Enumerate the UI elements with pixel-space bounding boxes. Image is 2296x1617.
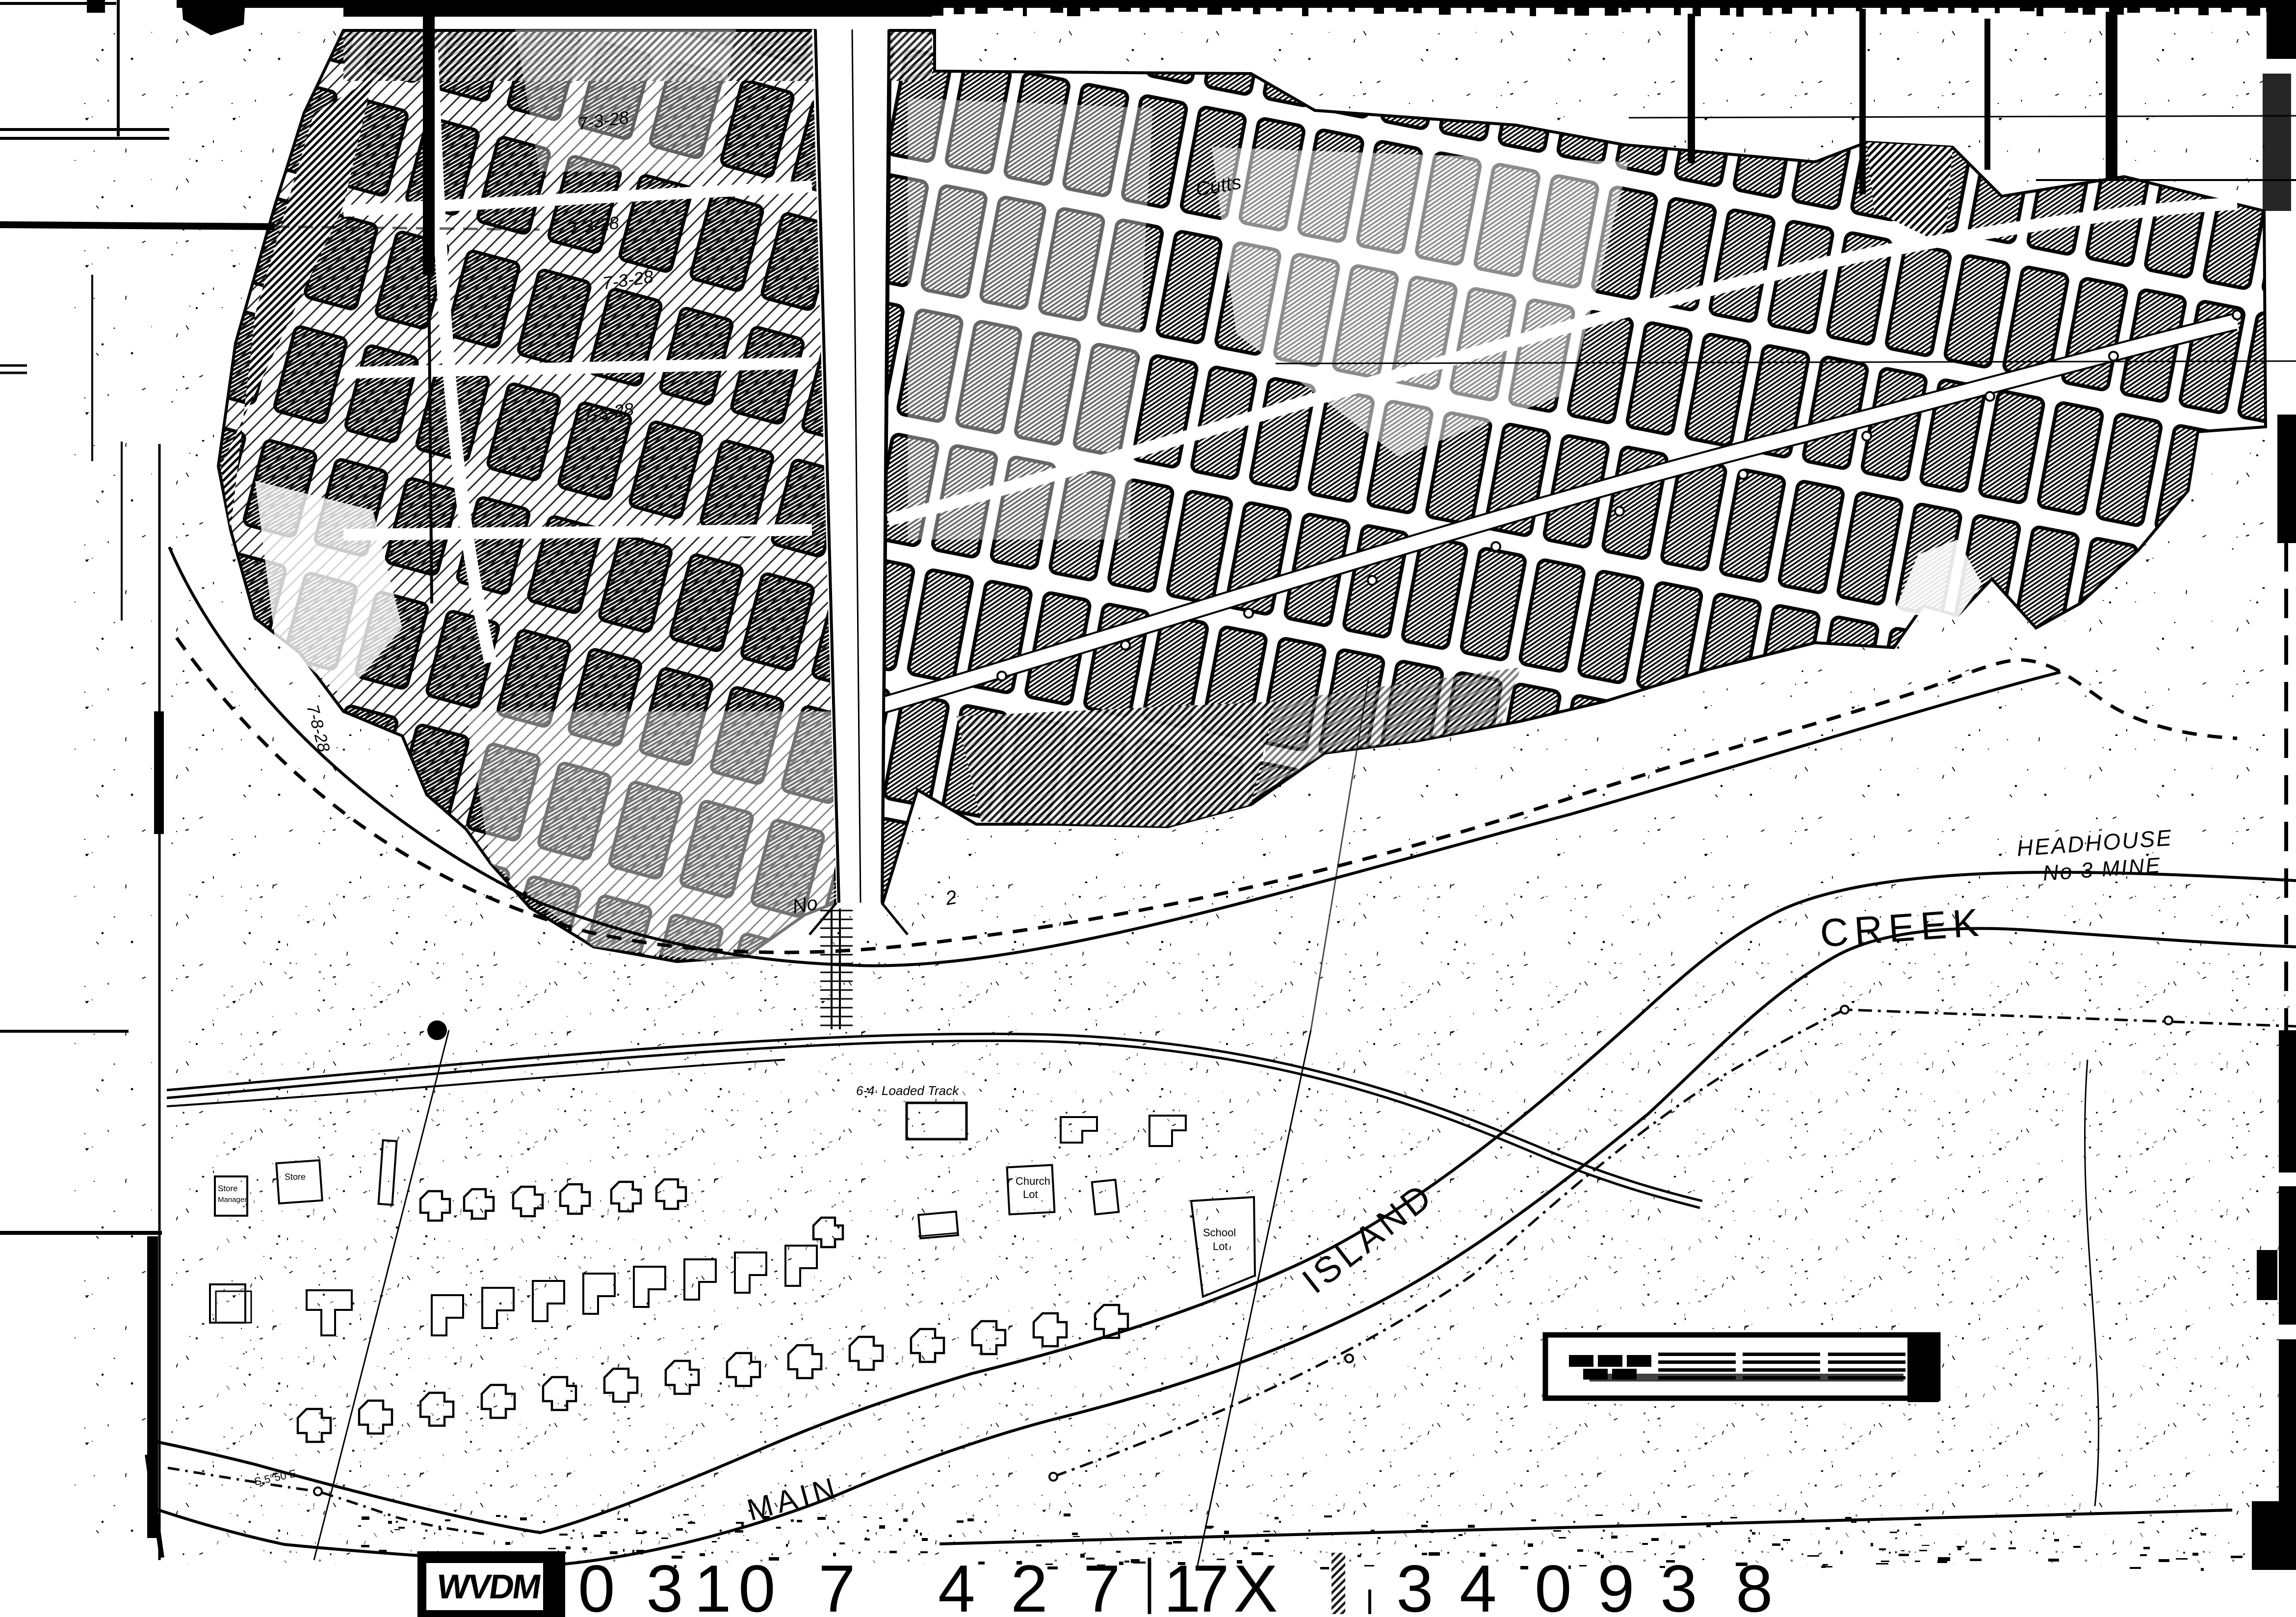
svg-text:WVDM: WVDM	[435, 1567, 544, 1606]
svg-text:0: 0	[738, 1551, 776, 1617]
svg-text:9: 9	[1597, 1551, 1635, 1617]
svg-text:Lot: Lot	[1213, 1240, 1228, 1252]
svg-text:Store: Store	[218, 1184, 238, 1193]
svg-text:7: 7	[1083, 1551, 1121, 1617]
svg-text:Lot: Lot	[1023, 1188, 1038, 1200]
svg-text:School: School	[1203, 1226, 1236, 1239]
svg-text:0: 0	[578, 1551, 615, 1617]
svg-text:No: No	[791, 892, 819, 918]
svg-text:0: 0	[1535, 1551, 1572, 1617]
svg-text:Store: Store	[285, 1172, 306, 1182]
svg-text:1: 1	[694, 1551, 731, 1617]
svg-text:2: 2	[1011, 1551, 1048, 1617]
svg-text:8: 8	[1736, 1551, 1773, 1617]
svg-text:4: 4	[1460, 1551, 1497, 1617]
svg-text:7: 7	[1192, 1551, 1229, 1617]
svg-text:X: X	[1233, 1551, 1278, 1617]
svg-text:Church: Church	[1016, 1175, 1050, 1187]
svg-text:Manager: Manager	[218, 1196, 247, 1204]
svg-text:3: 3	[1660, 1551, 1697, 1617]
svg-text:3: 3	[1396, 1551, 1434, 1617]
svg-text:6-4 Loaded Track: 6-4 Loaded Track	[856, 1083, 960, 1098]
svg-text:7: 7	[818, 1551, 856, 1617]
svg-text:4: 4	[938, 1551, 975, 1617]
svg-text:3: 3	[646, 1551, 683, 1617]
